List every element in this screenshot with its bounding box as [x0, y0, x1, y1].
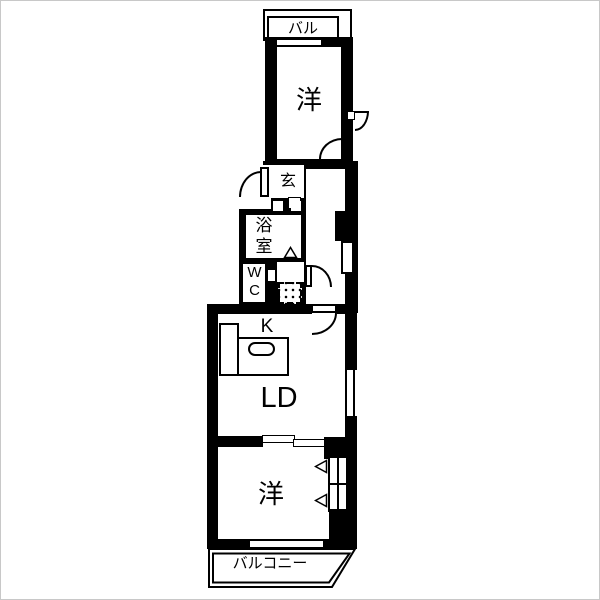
- wall-entry-right: [337, 304, 357, 314]
- room-bottom-label: 洋: [251, 479, 291, 511]
- sliding-door-panel-2: [293, 439, 325, 447]
- ldk-door-arc: [312, 313, 337, 335]
- washroom-floor: [277, 262, 304, 282]
- bath-door-triangle-icon: [283, 246, 298, 259]
- wall-ld-right-upper: [345, 314, 357, 370]
- living-dining-label: LD: [256, 381, 302, 415]
- washer-pan: [278, 282, 302, 304]
- wall-partition-left: [209, 436, 263, 447]
- wall-nook-left: [273, 201, 283, 211]
- bath-label: 浴室: [253, 215, 275, 259]
- washroom-door-leaf: [305, 265, 312, 287]
- toilet-label: WC: [246, 264, 263, 302]
- exterior-door-gap: [347, 111, 355, 120]
- sliding-door-panel-1: [262, 435, 295, 443]
- toilet-door-gap: [267, 269, 276, 282]
- kitchen-label: K: [257, 316, 277, 338]
- closet: [328, 456, 348, 512]
- exterior-door-arc: [355, 111, 369, 131]
- window-ld: [345, 368, 355, 418]
- closet-divider-horizontal: [330, 483, 346, 485]
- wall-closet-back: [347, 456, 357, 513]
- ldk-door-leaf: [311, 304, 337, 313]
- room-top-label: 洋: [289, 85, 329, 117]
- wall-right-notch: [335, 211, 358, 241]
- entrance-label: 玄: [275, 169, 301, 195]
- closet-door-triangle-icon: [314, 493, 328, 508]
- window-corridor: [341, 241, 354, 274]
- wall-left: [207, 304, 218, 549]
- entrance-door-leaf: [260, 167, 269, 197]
- closet-door-triangle-icon: [314, 459, 328, 474]
- balcony-bottom-label: バルコニー: [216, 553, 324, 575]
- kitchen-sink: [248, 342, 275, 356]
- kitchen-counter-left: [219, 323, 239, 376]
- wall-kitchen-top: [218, 304, 312, 314]
- floor-plan: バル 洋 玄 浴室 WC K LD: [0, 0, 600, 600]
- window-top-room: [275, 38, 323, 47]
- wall-nook-right: [291, 201, 301, 211]
